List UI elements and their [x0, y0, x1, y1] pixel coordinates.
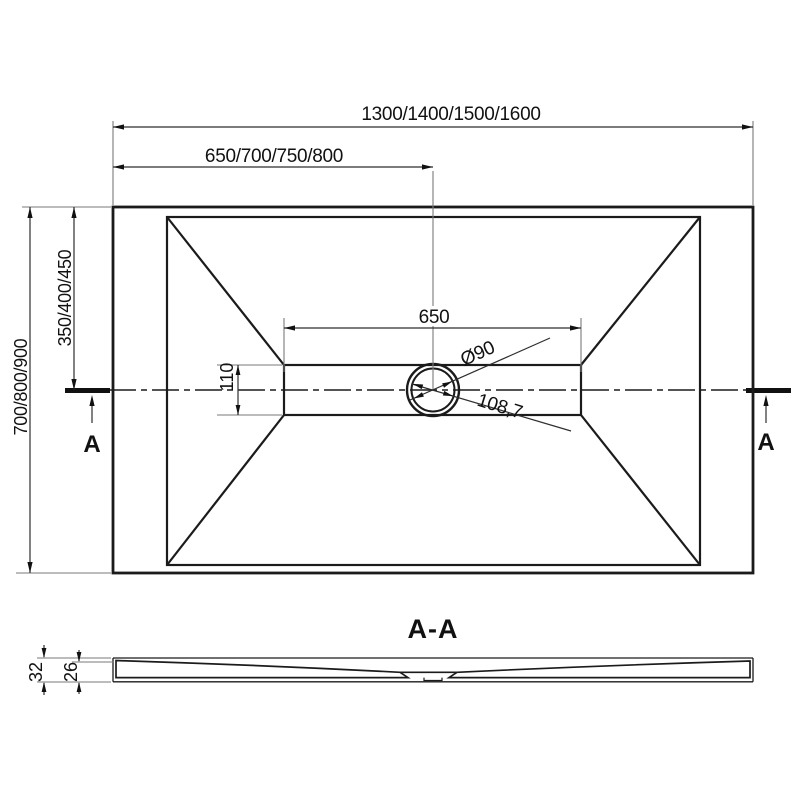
top-view: A A Ø90 108,7 — [11, 104, 791, 573]
section-cutting-line: A A — [65, 390, 791, 458]
base-height-label: 26 — [61, 662, 81, 682]
drain: Ø90 108,7 — [407, 337, 571, 431]
drain-offset-y-label: 350/400/450 — [55, 249, 75, 346]
dimension-channel-width: 110 — [217, 363, 240, 415]
dimension-base-height: 26 — [61, 650, 81, 694]
extension-lines — [16, 121, 753, 573]
dimension-overall-width: 1300/1400/1500/1600 — [113, 104, 753, 130]
section-title: A-A — [408, 614, 459, 644]
drain-offset-x-label: 650/700/750/800 — [205, 146, 343, 167]
section-cut-body — [116, 661, 750, 681]
section-body-left — [116, 661, 408, 678]
dimension-drain-offset-x: 650/700/750/800 — [113, 146, 433, 170]
section-marker-left-label: A — [83, 431, 100, 458]
section-view: A-A 32 — [26, 614, 753, 695]
overall-height-label: 32 — [26, 662, 46, 682]
channel-width-label: 110 — [217, 363, 237, 392]
drawing-page: A A Ø90 108,7 — [0, 0, 800, 800]
dimension-overall-depth: 700/800/900 — [11, 207, 33, 573]
drain-diagonal-label: 108,7 — [475, 390, 525, 424]
channel-length-label: 650 — [419, 307, 450, 328]
section-arrow-left — [89, 395, 94, 406]
section-arrow-right — [763, 395, 768, 406]
overall-width-label: 1300/1400/1500/1600 — [361, 104, 540, 125]
drain-outlet — [424, 678, 442, 681]
dimension-channel-length: 650 — [284, 306, 581, 331]
section-marker-right-label: A — [757, 429, 774, 456]
dimension-overall-height: 32 — [26, 645, 46, 695]
dimension-drain-offset-y: 350/400/450 — [55, 207, 77, 390]
overall-depth-label: 700/800/900 — [11, 338, 31, 435]
section-body-right — [449, 661, 750, 678]
shower-tray-technical-drawing: A A Ø90 108,7 — [0, 0, 800, 800]
